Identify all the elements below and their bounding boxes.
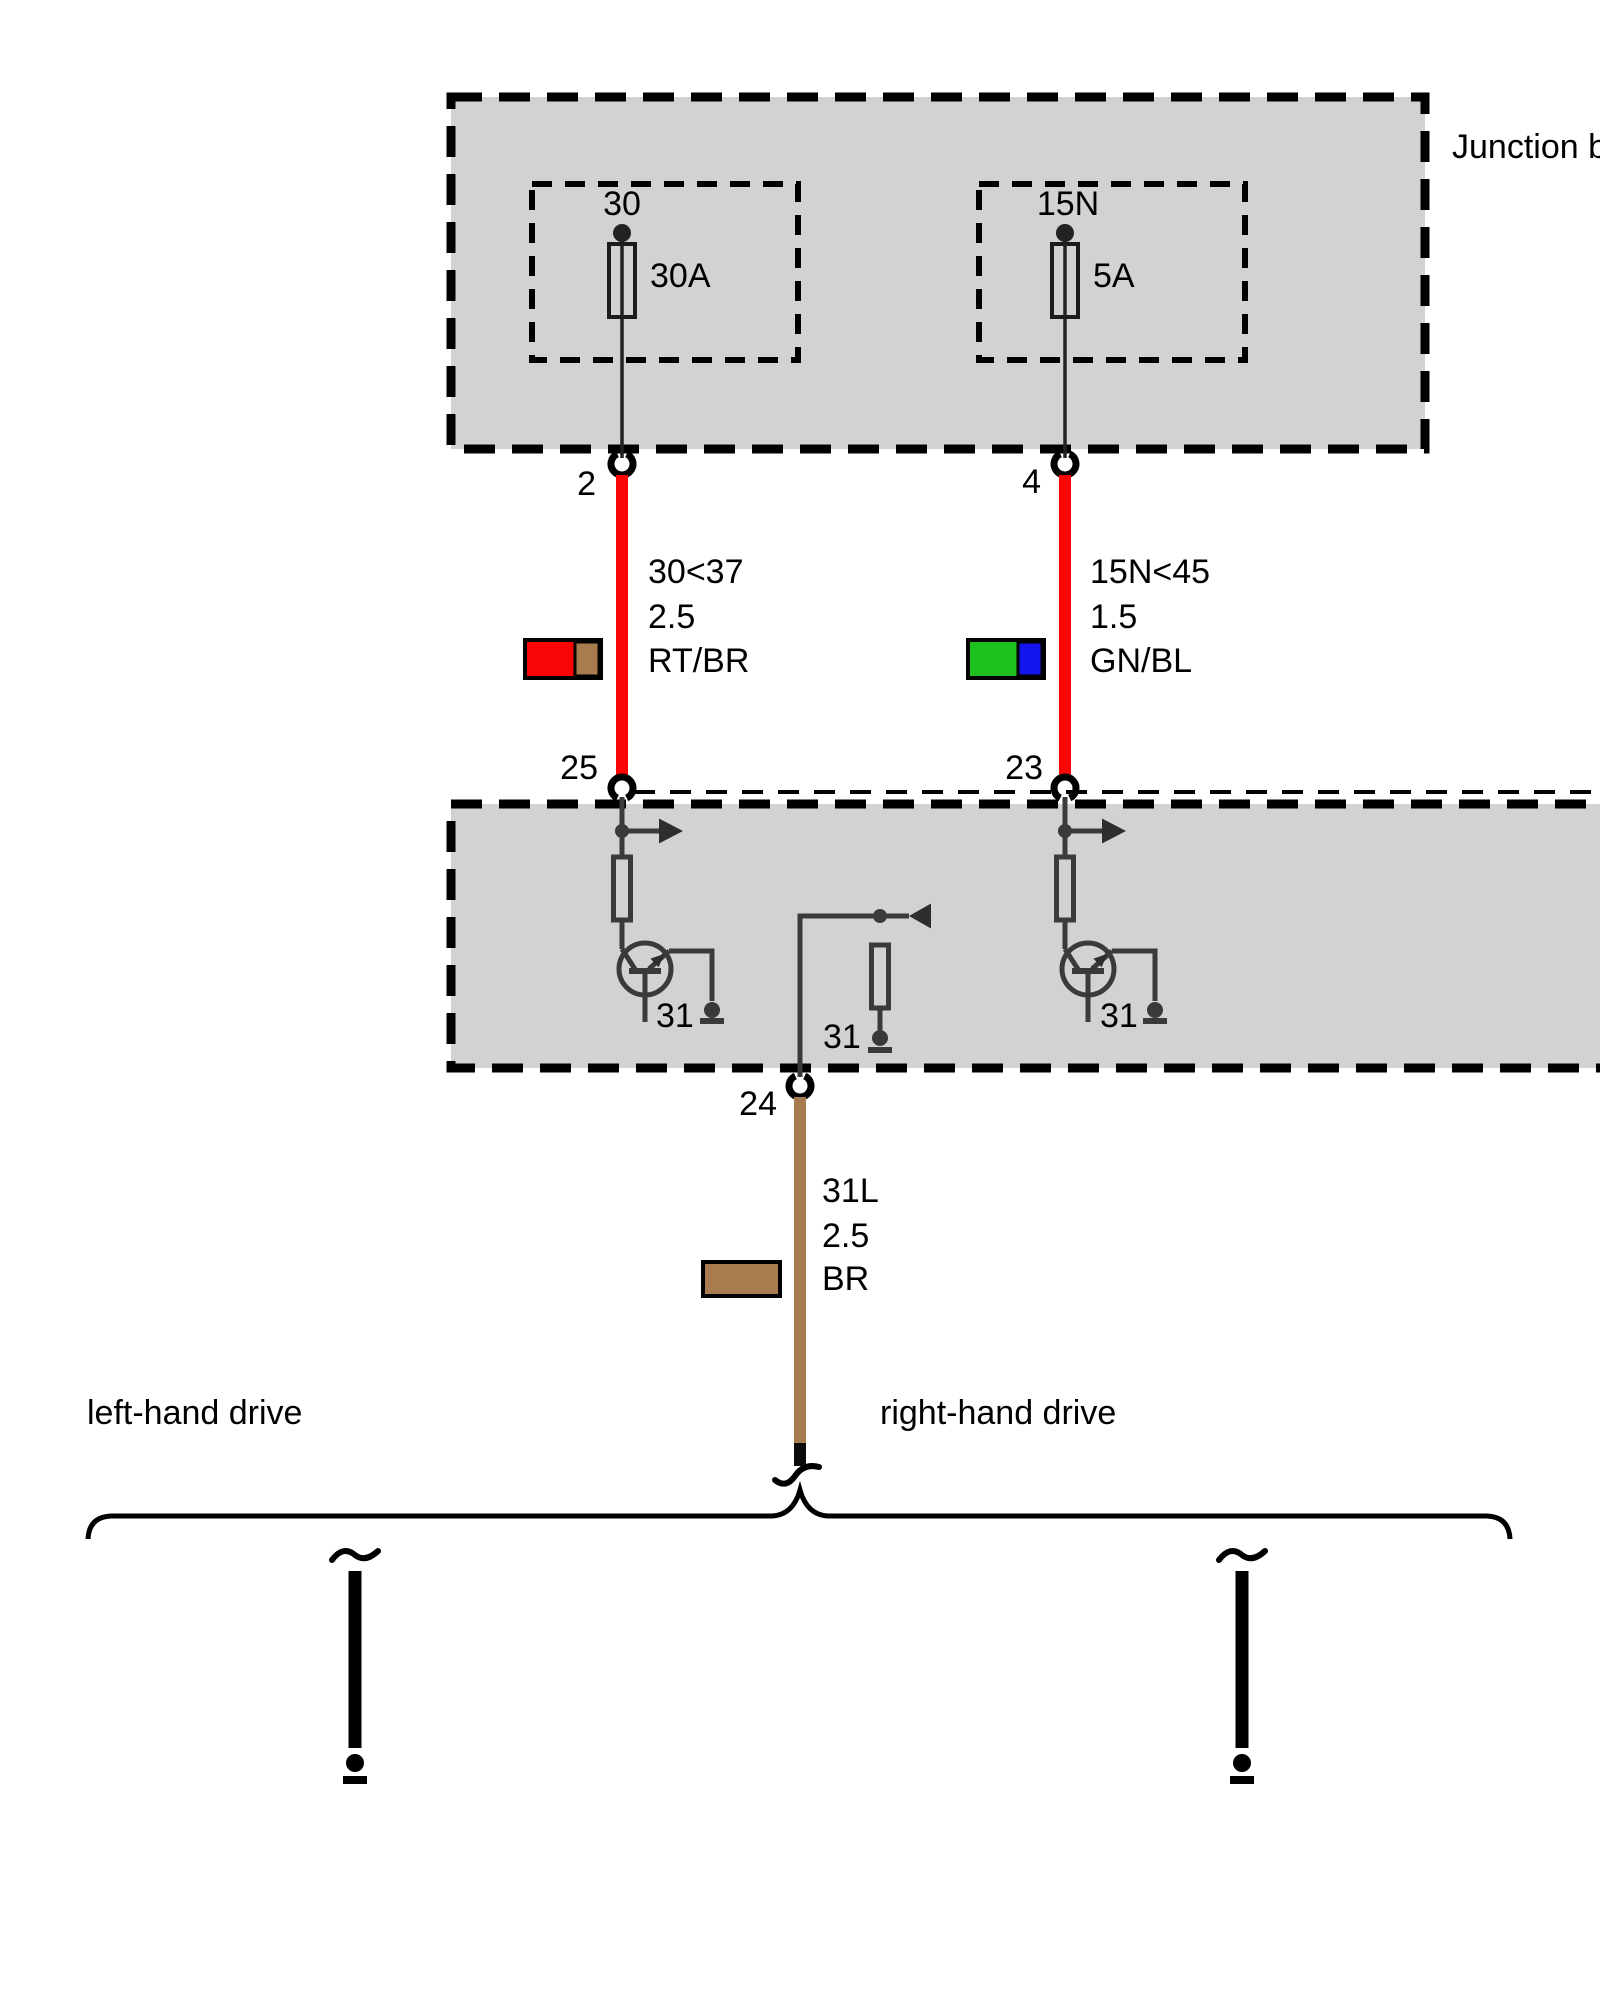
fuse-2-rating-label: 5A [1093, 257, 1135, 295]
wire-1-color-label: RT/BR [648, 642, 749, 680]
wire-2-color-swatch-blue [1018, 642, 1042, 676]
right-resistor [1057, 857, 1074, 920]
right-variant-label: right-hand drive [880, 1394, 1116, 1432]
junction-box [451, 97, 1425, 449]
pin-23-connector [1054, 777, 1076, 798]
left-ground-label: 31 [656, 997, 694, 1035]
middle-ground-dot [872, 1030, 888, 1046]
middle-resistor [872, 945, 889, 1008]
wire-2-circuit-label: 15N<45 [1090, 553, 1210, 591]
wire-3-color-label: BR [822, 1260, 869, 1298]
left-ground-point-dot [346, 1754, 364, 1772]
pin-4-label: 4 [1022, 463, 1041, 501]
right-ground-label: 31 [1100, 997, 1138, 1035]
variant-brace [88, 1490, 1510, 1539]
wire-break-squiggle-icon [775, 1466, 819, 1484]
left-variant-label: left-hand drive [87, 1394, 302, 1432]
left-ground-squiggle-icon [332, 1551, 378, 1560]
pin-25-connector [611, 777, 633, 798]
pin-25-label: 25 [560, 749, 598, 787]
wire-2-color-label: GN/BL [1090, 642, 1192, 680]
left-junction-dot [615, 824, 629, 838]
left-resistor [614, 857, 631, 920]
middle-junction-dot [873, 909, 887, 923]
wire-2-gauge-label: 1.5 [1090, 598, 1137, 636]
fuse-2-terminal-dot [1056, 224, 1074, 242]
wire-1-gauge-label: 2.5 [648, 598, 695, 636]
pin-24-label: 24 [739, 1085, 777, 1123]
right-ground-dot [1147, 1002, 1163, 1018]
fuse-1-terminal-label: 30 [603, 185, 641, 223]
fuse-1-rating-label: 30A [650, 257, 711, 295]
fuse-2-terminal-label: 15N [1037, 185, 1099, 223]
wire-3-color-swatch-brown [703, 1262, 780, 1296]
pin-2-label: 2 [577, 465, 596, 503]
junction-box-label: Junction box [1452, 128, 1600, 166]
wire-3-circuit-label: 31L [822, 1172, 879, 1210]
left-ground-dot [704, 1002, 720, 1018]
wiring-diagram: Junction box 30 30A 15N 5A 2 4 30<37 2.5… [0, 0, 1600, 2000]
wire-1-circuit-label: 30<37 [648, 553, 744, 591]
wire-3-gauge-label: 2.5 [822, 1217, 869, 1255]
right-junction-dot [1058, 824, 1072, 838]
wire-1-color-swatch-brown [575, 642, 599, 676]
right-ground-squiggle-icon [1219, 1551, 1265, 1560]
fuse-1-terminal-dot [613, 224, 631, 242]
pin-24-connector [789, 1076, 811, 1097]
pin-23-label: 23 [1005, 749, 1043, 787]
right-ground-point-dot [1233, 1754, 1251, 1772]
middle-ground-label: 31 [823, 1018, 861, 1056]
